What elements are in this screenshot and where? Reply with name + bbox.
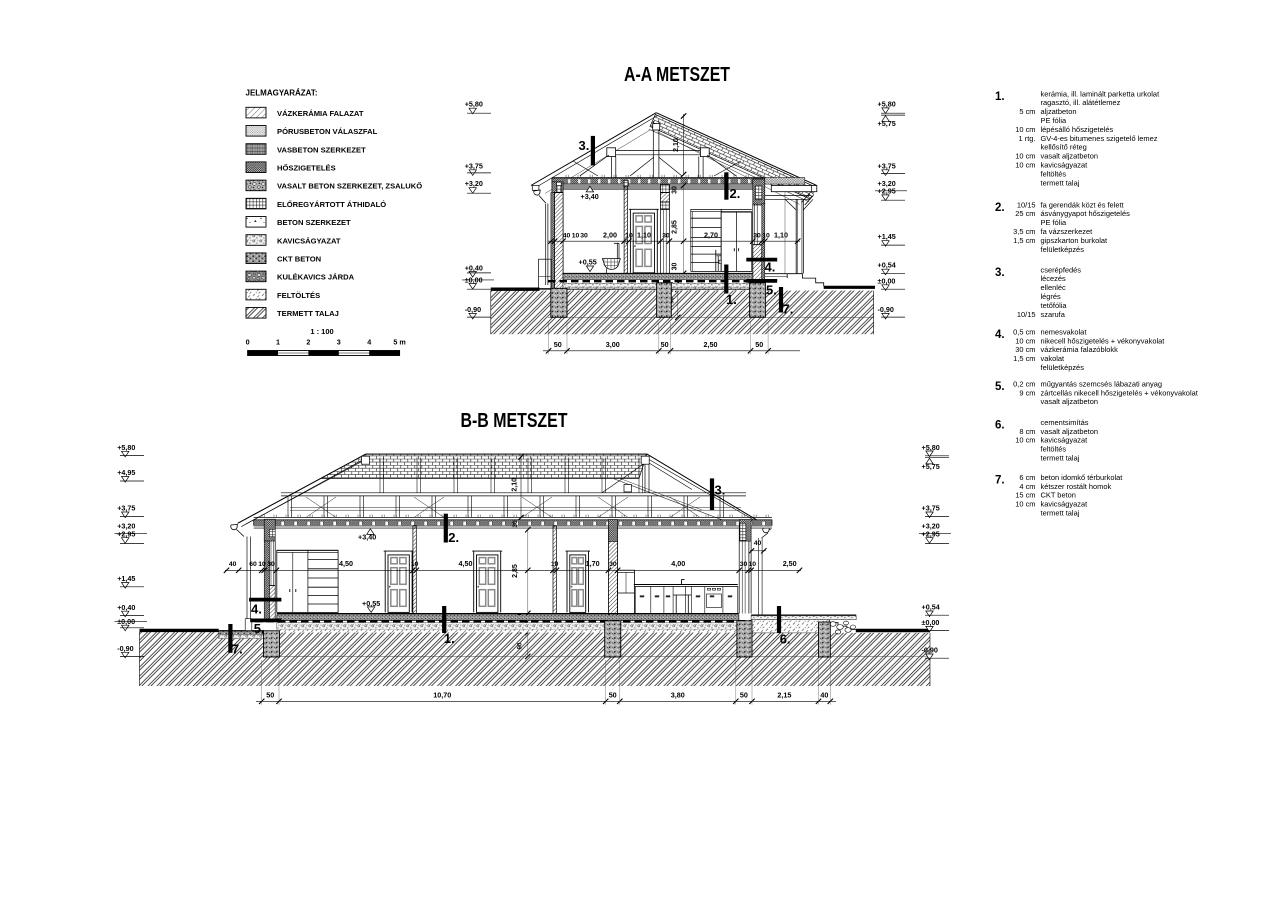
svg-text:2,10: 2,10	[673, 138, 680, 152]
svg-text:25 cm: 25 cm	[1015, 209, 1035, 218]
svg-text:50: 50	[266, 691, 274, 700]
svg-text:+5,75: +5,75	[878, 119, 896, 128]
svg-text:3.: 3.	[579, 138, 590, 153]
svg-text:4,00: 4,00	[671, 559, 685, 568]
svg-text:2.: 2.	[448, 530, 459, 545]
svg-text:VASBETON SZERKEZET: VASBETON SZERKEZET	[277, 145, 366, 154]
svg-text:50: 50	[661, 340, 669, 349]
svg-text:10 cm: 10 cm	[1015, 336, 1035, 345]
svg-text:cementsimítás: cementsimítás	[1041, 418, 1089, 427]
svg-text:1 rtg.: 1 rtg.	[1019, 134, 1036, 143]
svg-text:1,5 cm: 1,5 cm	[1013, 354, 1035, 363]
svg-text:10,70: 10,70	[433, 691, 451, 700]
svg-text:+5,80: +5,80	[117, 443, 135, 452]
svg-text:5 cm: 5 cm	[1019, 107, 1035, 116]
svg-text:6.: 6.	[780, 632, 791, 647]
svg-text:4 cm: 4 cm	[1019, 482, 1035, 491]
svg-text:vakolat: vakolat	[1041, 354, 1065, 363]
svg-text:0: 0	[246, 338, 250, 347]
svg-text:30: 30	[580, 233, 588, 240]
svg-text:2,50: 2,50	[783, 559, 797, 568]
svg-text:+5,80: +5,80	[465, 100, 483, 109]
svg-text:TERMETT TALAJ: TERMETT TALAJ	[277, 309, 339, 318]
svg-text:10: 10	[551, 561, 559, 568]
svg-text:PE fólia: PE fólia	[1041, 218, 1067, 227]
svg-text:műgyantás szemcsés lábazati an: műgyantás szemcsés lábazati anyag	[1041, 379, 1163, 388]
svg-text:0,2 cm: 0,2 cm	[1013, 379, 1035, 388]
svg-text:2.: 2.	[730, 186, 741, 201]
svg-text:30: 30	[609, 561, 617, 568]
svg-text:4.: 4.	[995, 329, 1005, 341]
svg-text:+3,20: +3,20	[465, 179, 483, 188]
svg-text:-0,90: -0,90	[878, 305, 894, 314]
svg-text:5.: 5.	[254, 621, 265, 636]
svg-text:+3,75: +3,75	[922, 504, 940, 513]
svg-text:kavicságyazat: kavicságyazat	[1041, 436, 1089, 445]
svg-text:nemesvakolat: nemesvakolat	[1041, 327, 1088, 336]
svg-text:3.: 3.	[995, 267, 1005, 279]
svg-text:2,10: 2,10	[511, 478, 518, 492]
svg-text:30: 30	[740, 561, 748, 568]
svg-text:kavicságyazat: kavicságyazat	[1041, 161, 1089, 170]
svg-text:5.: 5.	[995, 381, 1005, 393]
svg-text:5 m: 5 m	[393, 338, 405, 347]
svg-text:vázkerámia falazóblokk: vázkerámia falazóblokk	[1041, 345, 1119, 354]
svg-text:3,5 cm: 3,5 cm	[1013, 227, 1035, 236]
svg-text:3: 3	[337, 338, 341, 347]
svg-text:30: 30	[671, 186, 678, 194]
svg-text:30: 30	[753, 233, 761, 240]
svg-text:30: 30	[512, 520, 519, 528]
svg-text:2,15: 2,15	[777, 691, 791, 700]
svg-text:10/15: 10/15	[1017, 310, 1036, 319]
svg-text:40: 40	[820, 691, 828, 700]
svg-text:1: 1	[276, 338, 280, 347]
svg-text:10: 10	[572, 233, 580, 240]
svg-text:vasalt aljzatbeton: vasalt aljzatbeton	[1041, 427, 1098, 436]
svg-text:lécezés: lécezés	[1041, 274, 1066, 283]
svg-text:gipszkarton burkolat: gipszkarton burkolat	[1041, 236, 1108, 245]
svg-text:2,00: 2,00	[603, 231, 617, 240]
svg-text:CKT BETON: CKT BETON	[277, 255, 321, 264]
svg-text:15 cm: 15 cm	[1015, 491, 1035, 500]
svg-text:1,10: 1,10	[637, 231, 651, 240]
svg-text:6.: 6.	[995, 420, 1005, 432]
svg-text:+1,45: +1,45	[117, 574, 135, 583]
svg-text:50: 50	[609, 691, 617, 700]
svg-text:+5,80: +5,80	[878, 100, 896, 109]
svg-text:fa vázszerkezet: fa vázszerkezet	[1041, 227, 1094, 236]
svg-text:+0,55: +0,55	[362, 599, 380, 608]
svg-text:8 cm: 8 cm	[1019, 427, 1035, 436]
svg-text:1 : 100: 1 : 100	[310, 327, 333, 336]
svg-text:ragasztó, ill. alátétlemez: ragasztó, ill. alátétlemez	[1041, 98, 1121, 107]
svg-text:1.: 1.	[995, 91, 1005, 103]
svg-text:60: 60	[249, 561, 257, 568]
svg-text:40: 40	[229, 561, 237, 568]
svg-text:30: 30	[671, 263, 678, 271]
svg-text:+0,54: +0,54	[922, 603, 940, 612]
svg-text:+0,40: +0,40	[465, 263, 483, 272]
svg-text:zártcellás nikecell hőszigetel: zártcellás nikecell hőszigetelés + vékon…	[1041, 388, 1199, 397]
svg-text:10: 10	[749, 561, 757, 568]
svg-text:1,5 cm: 1,5 cm	[1013, 236, 1035, 245]
svg-text:±0,00: ±0,00	[878, 276, 896, 285]
svg-text:10 cm: 10 cm	[1015, 125, 1035, 134]
svg-text:10 cm: 10 cm	[1015, 152, 1035, 161]
svg-text:+3,40: +3,40	[581, 192, 599, 201]
svg-text:10 cm: 10 cm	[1015, 436, 1035, 445]
svg-text:aljzatbeton: aljzatbeton	[1041, 107, 1077, 116]
svg-text:1.: 1.	[726, 292, 737, 307]
svg-text:5.: 5.	[766, 283, 777, 298]
svg-text:PE fólia: PE fólia	[1041, 116, 1067, 125]
svg-text:+5,75: +5,75	[922, 462, 940, 471]
svg-text:-0,90: -0,90	[117, 644, 133, 653]
svg-text:vasalt aljzatbeton: vasalt aljzatbeton	[1041, 152, 1098, 161]
svg-text:+2,95: +2,95	[117, 530, 135, 539]
svg-text:50: 50	[740, 691, 748, 700]
svg-text:7.: 7.	[995, 475, 1005, 487]
svg-text:±0,00: ±0,00	[922, 618, 940, 627]
svg-text:felületképzés: felületképzés	[1041, 245, 1085, 254]
svg-text:2,50: 2,50	[704, 340, 718, 349]
svg-text:30 cm: 30 cm	[1015, 345, 1035, 354]
svg-text:szarufa: szarufa	[1041, 310, 1066, 319]
svg-text:10 cm: 10 cm	[1015, 500, 1035, 509]
svg-text:40: 40	[754, 540, 762, 547]
svg-text:+4,95: +4,95	[117, 468, 135, 477]
svg-text:+2,95: +2,95	[922, 530, 940, 539]
svg-text:fa gerendák közt és felett: fa gerendák közt és felett	[1041, 200, 1125, 209]
svg-text:2,85: 2,85	[671, 220, 678, 234]
svg-text:50: 50	[554, 340, 562, 349]
svg-text:nikecell hőszigetelés + vékony: nikecell hőszigetelés + vékonyvakolat	[1041, 336, 1166, 345]
svg-text:4: 4	[367, 338, 371, 347]
svg-text:felületképzés: felületképzés	[1041, 363, 1085, 372]
svg-text:3,00: 3,00	[606, 340, 620, 349]
svg-text:3,80: 3,80	[671, 691, 685, 700]
svg-text:7.: 7.	[232, 642, 243, 657]
svg-text:2,70: 2,70	[704, 231, 718, 240]
svg-text:feltöltés: feltöltés	[1041, 445, 1067, 454]
svg-text:HŐSZIGETELÉS: HŐSZIGETELÉS	[277, 164, 336, 173]
svg-text:kellősítő réteg: kellősítő réteg	[1041, 143, 1087, 152]
svg-text:+0,54: +0,54	[878, 261, 896, 270]
svg-text:30: 30	[267, 561, 275, 568]
svg-text:6 cm: 6 cm	[1019, 473, 1035, 482]
svg-text:PÓRUSBETON VÁLASZFAL: PÓRUSBETON VÁLASZFAL	[277, 127, 378, 136]
svg-text:1,70: 1,70	[586, 559, 600, 568]
svg-text:50: 50	[755, 340, 763, 349]
svg-text:1.: 1.	[444, 631, 455, 646]
svg-text:KAVICSÁGYAZAT: KAVICSÁGYAZAT	[277, 236, 341, 245]
svg-text:9 cm: 9 cm	[1019, 388, 1035, 397]
svg-text:10: 10	[411, 561, 419, 568]
svg-text:légrés: légrés	[1041, 292, 1062, 301]
svg-text:10: 10	[258, 561, 266, 568]
svg-text:+0,55: +0,55	[579, 258, 597, 267]
svg-text:+0,40: +0,40	[117, 603, 135, 612]
svg-text:+3,75: +3,75	[117, 504, 135, 513]
svg-text:+5,80: +5,80	[922, 443, 940, 452]
svg-text:2,85: 2,85	[512, 564, 519, 578]
svg-text:JELMAGYARÁZAT:: JELMAGYARÁZAT:	[246, 89, 318, 98]
svg-text:10: 10	[625, 233, 633, 240]
svg-text:VASALT BETON SZERKEZET, ZSALUK: VASALT BETON SZERKEZET, ZSALUKŐ	[277, 182, 422, 191]
svg-text:-0,90: -0,90	[465, 305, 481, 314]
svg-text:0,5 cm: 0,5 cm	[1013, 327, 1035, 336]
svg-text:10: 10	[762, 233, 770, 240]
svg-text:tetőfólia: tetőfólia	[1041, 301, 1068, 310]
svg-text:3.: 3.	[715, 483, 726, 498]
svg-text:10 cm: 10 cm	[1015, 161, 1035, 170]
svg-text:1,10: 1,10	[774, 231, 788, 240]
svg-text:2: 2	[306, 338, 310, 347]
svg-text:CKT beton: CKT beton	[1041, 491, 1076, 500]
svg-text:GV-4-es bitumenes szigetelő le: GV-4-es bitumenes szigetelő lemez	[1041, 134, 1158, 143]
svg-text:feltöltés: feltöltés	[1041, 169, 1067, 178]
svg-text:+3,75: +3,75	[878, 161, 896, 170]
svg-text:4,50: 4,50	[459, 559, 473, 568]
svg-text:termett talaj: termett talaj	[1041, 509, 1080, 518]
svg-text:ásványgyapot hőszigetelés: ásványgyapot hőszigetelés	[1041, 209, 1131, 218]
svg-text:7.: 7.	[783, 302, 794, 317]
svg-text:beton idomkő térburkolat: beton idomkő térburkolat	[1041, 473, 1124, 482]
svg-text:termett talaj: termett talaj	[1041, 454, 1080, 463]
svg-text:kavicságyazat: kavicságyazat	[1041, 500, 1089, 509]
svg-text:B-B METSZET: B-B METSZET	[461, 410, 568, 432]
svg-text:4,50: 4,50	[339, 559, 353, 568]
svg-text:10/15: 10/15	[1017, 200, 1036, 209]
svg-text:ELŐREGYÁRTOTT ÁTHIDALÓ: ELŐREGYÁRTOTT ÁTHIDALÓ	[277, 200, 386, 209]
svg-text:+3,40: +3,40	[358, 532, 376, 541]
svg-text:vasalt aljzatbeton: vasalt aljzatbeton	[1041, 397, 1098, 406]
svg-text:40: 40	[563, 233, 571, 240]
svg-text:cserépfedés: cserépfedés	[1041, 265, 1082, 274]
svg-text:FELTÖLTÉS: FELTÖLTÉS	[277, 291, 320, 300]
svg-text:BETON SZERKEZET: BETON SZERKEZET	[277, 218, 351, 227]
svg-text:KULÉKAVICS JÁRDA: KULÉKAVICS JÁRDA	[277, 273, 355, 282]
svg-text:-0,90: -0,90	[922, 646, 938, 655]
svg-text:kerámia, ill. laminált parkett: kerámia, ill. laminált parketta urkolat	[1041, 89, 1161, 98]
svg-text:4.: 4.	[251, 602, 262, 617]
svg-text:ellenléc: ellenléc	[1041, 283, 1067, 292]
svg-text:+1,45: +1,45	[878, 232, 896, 241]
svg-text:+2,95: +2,95	[878, 187, 896, 196]
svg-text:2.: 2.	[995, 202, 1005, 214]
svg-text:+3,75: +3,75	[465, 161, 483, 170]
svg-text:A-A METSZET: A-A METSZET	[624, 64, 730, 86]
svg-text:30: 30	[662, 233, 670, 240]
svg-text:4.: 4.	[765, 260, 776, 275]
svg-text:kétszer rostált homok: kétszer rostált homok	[1041, 482, 1112, 491]
svg-text:VÁZKERÁMIA FALAZAT: VÁZKERÁMIA FALAZAT	[277, 109, 364, 118]
svg-text:lépésálló hőszigetelés: lépésálló hőszigetelés	[1041, 125, 1114, 134]
svg-text:termett talaj: termett talaj	[1041, 178, 1080, 187]
